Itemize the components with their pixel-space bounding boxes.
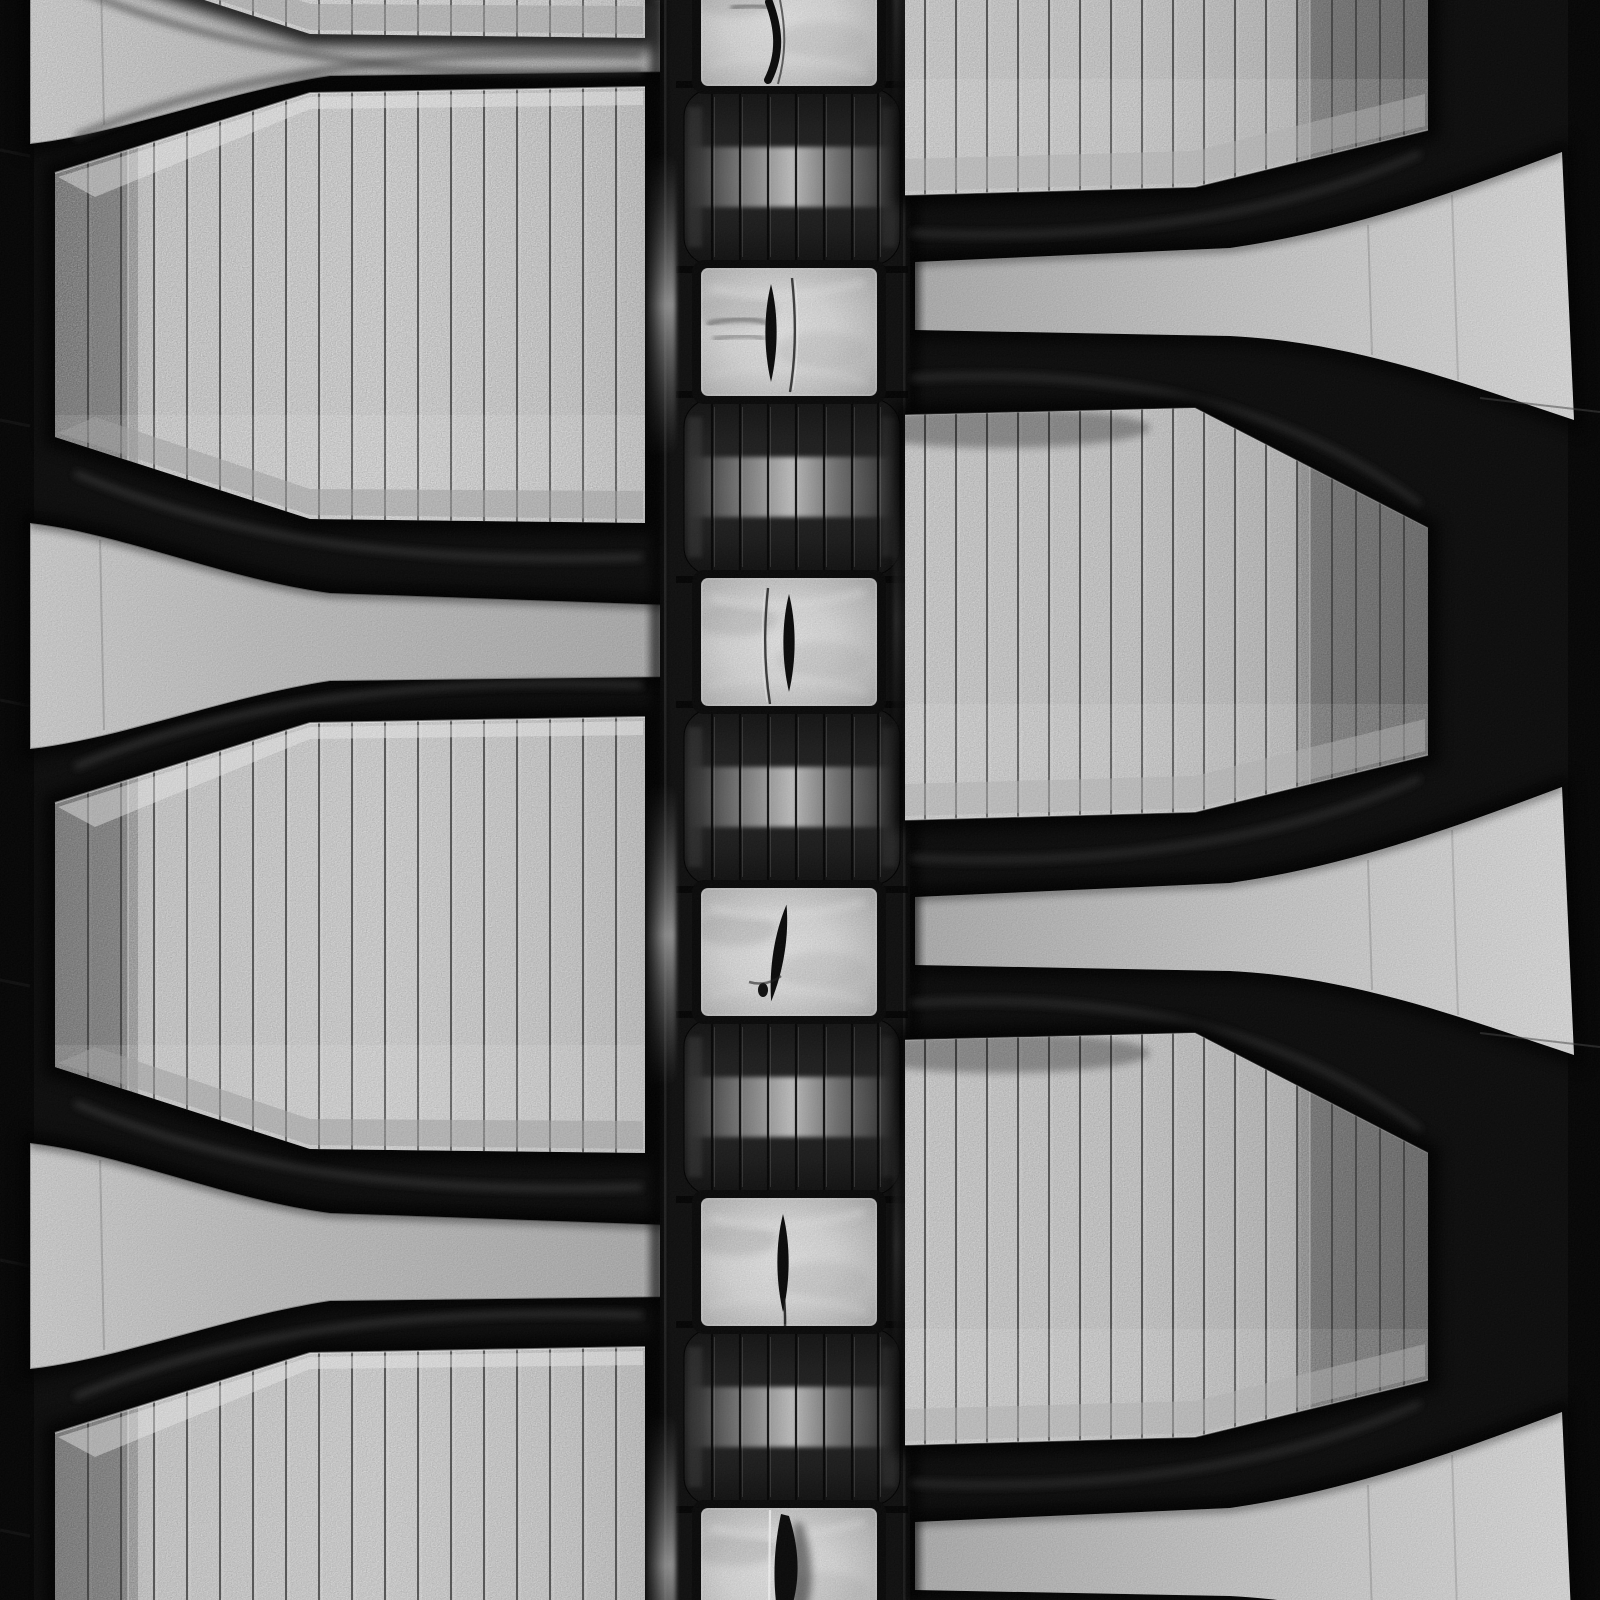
- rubber-track-photo: Black-and-white close-up of a heavy-equi…: [0, 0, 1600, 1600]
- track-tread-scene: [0, 0, 1600, 1600]
